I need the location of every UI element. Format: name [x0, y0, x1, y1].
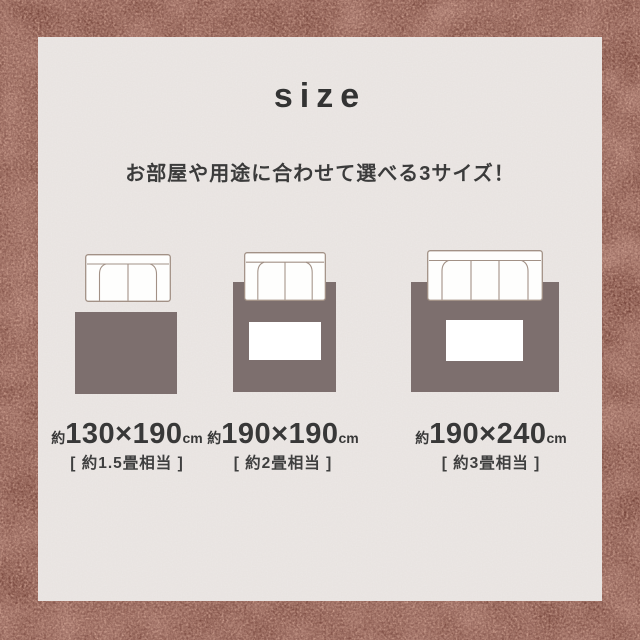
page-title: size: [38, 79, 602, 113]
subtitle: お部屋や用途に合わせて選べる3サイズ！: [38, 161, 602, 187]
content-panel: size お部屋や用途に合わせて選べる3サイズ！ 約130×190cm [ 約1…: [38, 37, 602, 601]
coffee-table-illustration: [446, 320, 523, 361]
approx-prefix: 約: [207, 430, 221, 446]
size-label: 約190×240cm: [361, 420, 621, 449]
unit-label: cm: [338, 430, 358, 446]
unit-label: cm: [546, 430, 566, 446]
approx-prefix: 約: [415, 430, 429, 446]
rug-illustration-130x190: [75, 312, 177, 394]
sofa-top-view-icon: [244, 252, 326, 301]
sofa-top-view-icon: [427, 250, 543, 301]
rug-size-infographic: size お部屋や用途に合わせて選べる3サイズ！ 約130×190cm [ 約1…: [0, 0, 640, 640]
sofa-top-view-icon: [85, 254, 171, 302]
tatami-equivalent-label: [ 約3畳相当 ]: [361, 456, 621, 472]
dimensions-value: 190×240: [429, 418, 546, 450]
approx-prefix: 約: [51, 430, 65, 446]
dimensions-value: 190×190: [221, 418, 338, 450]
coffee-table-illustration: [249, 322, 321, 360]
